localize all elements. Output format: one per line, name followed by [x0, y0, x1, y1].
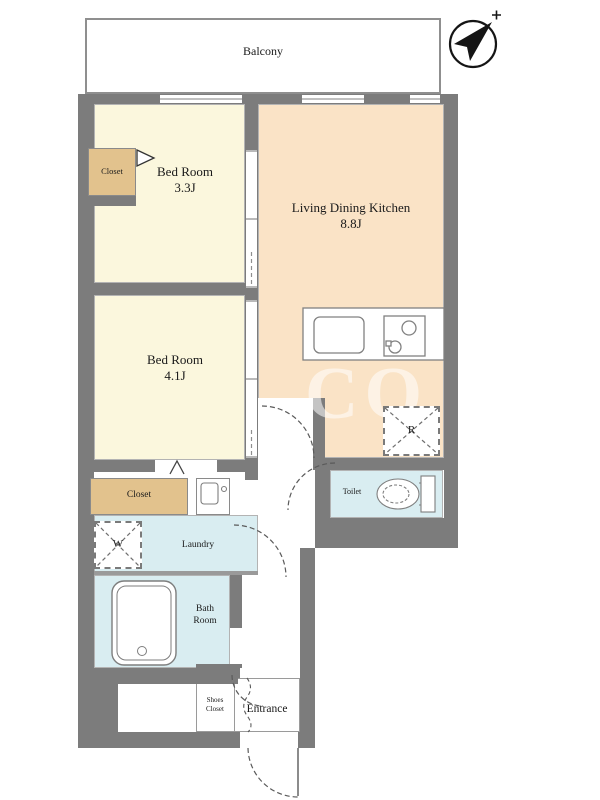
- shoes-closet-line1: Shoes: [207, 696, 224, 704]
- bathroom-label: Bath Room: [180, 604, 230, 628]
- bathtub-fixture: [112, 581, 176, 665]
- ldk-label: Living Dining Kitchen 8.8J: [258, 200, 444, 233]
- stove-burner-1: [402, 321, 416, 335]
- bedroom-1-size: 3.3J: [120, 180, 250, 196]
- washer-label: W: [94, 538, 142, 552]
- ldk-name: Living Dining Kitchen: [292, 200, 410, 215]
- bedroom-2-name: Bed Room: [147, 352, 203, 367]
- toilet-label: Toilet: [331, 487, 373, 497]
- stove-knob: [386, 341, 391, 346]
- bed2-door-marker: [170, 461, 184, 474]
- kitchen-counter: [303, 308, 444, 360]
- plan-linework: [0, 0, 600, 800]
- door-arc-front-door: [248, 748, 298, 797]
- door-swing-arcs: [232, 406, 335, 797]
- kitchen-sink: [314, 317, 364, 353]
- sliding-door-lines: [246, 151, 257, 457]
- closet-1-label: Closet: [88, 166, 136, 177]
- shoes-closet-line2: Closet: [196, 705, 234, 714]
- bedroom-2-size: 4.1J: [110, 368, 240, 384]
- entrance-label: Entrance: [234, 702, 300, 716]
- bathroom-label-line2: Room: [180, 616, 230, 628]
- bedroom-1-name: Bed Room: [157, 164, 213, 179]
- shoes-closet-label: Shoes Closet: [196, 696, 234, 714]
- balcony-label: Balcony: [85, 44, 441, 59]
- closet-2-label: Closet: [90, 490, 188, 502]
- laundry-label: Laundry: [150, 540, 246, 552]
- ldk-size: 8.8J: [258, 216, 444, 232]
- bathroom-label-line1: Bath: [196, 604, 214, 614]
- bedroom-2-label: Bed Room 4.1J: [110, 352, 240, 385]
- toilet-fixture: [377, 476, 435, 512]
- door-arc-toilet: [288, 463, 335, 510]
- floor-plan: Balcony CO: [0, 0, 600, 800]
- door-arc-ldk: [262, 406, 314, 458]
- bedroom-1-label: Bed Room 3.3J: [120, 164, 250, 197]
- north-arrow-icon: [450, 11, 501, 68]
- washbasin-bowl: [201, 483, 227, 504]
- refrigerator-label: R: [383, 424, 440, 438]
